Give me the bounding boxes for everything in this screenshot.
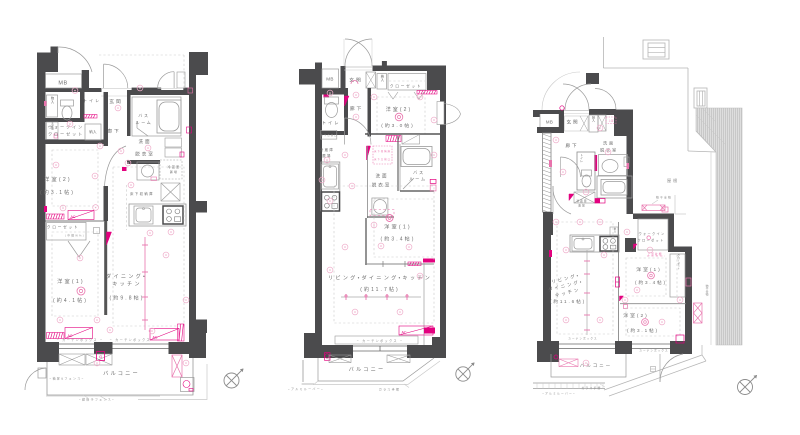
svg-text:AC: AC — [71, 215, 76, 219]
svg-text:(約3.4帖): (約3.4帖) — [381, 236, 416, 243]
svg-text:カーテンボックス: カーテンボックス — [639, 349, 668, 353]
svg-text:~アルミルーバー~: ~アルミルーバー~ — [542, 392, 576, 396]
svg-text:納入: 納入 — [613, 227, 616, 233]
svg-text:~袖扉&フェンス~: ~袖扉&フェンス~ — [49, 376, 84, 381]
svg-text:冷蔵庫: 冷蔵庫 — [168, 164, 181, 169]
svg-text:バス: バス — [138, 113, 149, 118]
svg-text:(約4.1帖): (約4.1帖) — [53, 297, 88, 304]
svg-text:洗面: 洗面 — [603, 140, 615, 147]
svg-text:洗面: 洗面 — [376, 173, 389, 180]
svg-text:~アルミルーバー~: ~アルミルーバー~ — [288, 386, 324, 391]
svg-text:~ カーテンボックス ~: ~ カーテンボックス ~ — [110, 337, 157, 342]
svg-text:ウォークイン: ウォークイン — [48, 124, 84, 131]
svg-text:(約11.7帖): (約11.7帖) — [360, 286, 400, 293]
svg-text:床下収納庫: 床下収納庫 — [130, 191, 154, 196]
svg-text:MB: MB — [546, 120, 553, 125]
svg-text:トイレ: トイレ — [322, 121, 341, 126]
svg-text:納入: 納入 — [379, 74, 383, 82]
svg-text:物干金物: 物干金物 — [656, 196, 672, 200]
svg-text:トイレ: トイレ — [83, 98, 101, 103]
svg-text:洋室(1): 洋室(1) — [57, 277, 85, 285]
svg-text:床下点検口: 床下点検口 — [321, 133, 338, 137]
svg-text:バルコニー: バルコニー — [349, 366, 386, 373]
svg-text:~縦格子フェンス~: ~縦格子フェンス~ — [79, 397, 115, 402]
svg-text:~ カーテンボックス ~: ~ カーテンボックス ~ — [57, 337, 104, 342]
svg-text:AC: AC — [402, 331, 407, 335]
svg-text:ガラス手摺: ガラス手摺 — [379, 387, 400, 392]
svg-text:物入: 物入 — [50, 96, 54, 104]
svg-text:脱衣室: 脱衣室 — [372, 182, 391, 189]
svg-text:洗面: 洗面 — [139, 138, 152, 145]
svg-text:廊下: 廊下 — [350, 105, 364, 112]
svg-text:クローゼット: クローゼット — [638, 238, 665, 243]
svg-text:クローゼット: クローゼット — [390, 84, 422, 89]
svg-text:バス: バス — [413, 170, 425, 175]
svg-text:(約3.1帖): (約3.1帖) — [40, 189, 75, 196]
svg-text:キッチン: キッチン — [112, 281, 142, 288]
svg-text:クローゼット: クローゼット — [47, 225, 79, 230]
svg-text:物干金物: 物干金物 — [705, 284, 709, 296]
svg-text:洋室(1): 洋室(1) — [636, 266, 661, 273]
svg-text:ウォークイン: ウォークイン — [639, 231, 666, 236]
svg-text:(約9.8帖): (約9.8帖) — [110, 295, 145, 302]
svg-text:納入: 納入 — [89, 129, 97, 134]
svg-text:廊下: 廊下 — [566, 142, 579, 149]
svg-text:(約3.1帖): (約3.1帖) — [627, 327, 659, 334]
svg-text:ガラス手摺: ガラス手摺 — [582, 386, 602, 390]
svg-text:ルーム: ルーム — [409, 177, 427, 182]
svg-text:床下点検口: 床下点検口 — [374, 157, 391, 161]
svg-text:脱衣室: 脱衣室 — [135, 151, 154, 158]
svg-text:洋室(2): 洋室(2) — [623, 312, 648, 319]
svg-text:MB: MB — [326, 77, 334, 82]
svg-text:上部: 上部 — [609, 119, 614, 123]
svg-text:クローゼット: クローゼット — [48, 131, 84, 138]
svg-text:バルコニー: バルコニー — [103, 370, 140, 377]
svg-text:(約3.0帖): (約3.0帖) — [381, 122, 414, 129]
svg-text:冷蔵庫: 冷蔵庫 — [320, 147, 334, 152]
svg-text:玄関: 玄関 — [109, 98, 123, 105]
svg-text:(約11.6帖): (約11.6帖) — [550, 298, 586, 305]
svg-text:廊下: 廊下 — [107, 128, 121, 135]
svg-text:~ カーテンボックス ~: ~ カーテンボックス ~ — [357, 338, 404, 343]
svg-text:ダイニング・: ダイニング・ — [106, 272, 147, 280]
svg-text:(中棚W%): (中棚W%) — [65, 234, 85, 238]
svg-text:カーテンボックス: カーテンボックス — [568, 337, 597, 341]
svg-text:屋根: 屋根 — [667, 177, 679, 184]
svg-text:MB: MB — [58, 81, 67, 87]
svg-text:トイレ: トイレ — [580, 153, 584, 162]
svg-text:脱衣室: 脱衣室 — [600, 147, 618, 154]
svg-text:床下収納庫: 床下収納庫 — [374, 149, 391, 153]
svg-text:(約3.4帖): (約3.4帖) — [635, 279, 667, 286]
svg-text:G: G — [99, 354, 102, 359]
svg-text:冷蔵庫: 冷蔵庫 — [576, 199, 587, 203]
svg-text:ルーム: ルーム — [136, 120, 153, 125]
svg-text:置場: 置場 — [578, 204, 586, 208]
svg-text:玄関: 玄関 — [567, 119, 580, 126]
svg-text:洋室(1): 洋室(1) — [384, 223, 412, 231]
svg-text:置場: 置場 — [170, 169, 179, 174]
svg-text:洋室(2): 洋室(2) — [44, 175, 72, 183]
svg-text:クローゼット: クローゼット — [677, 253, 680, 270]
svg-text:納入: 納入 — [592, 115, 596, 123]
svg-text:リビング・ダイニング・キッチン: リビング・ダイニング・キッチン — [328, 274, 432, 282]
svg-text:洋室(2): 洋室(2) — [386, 106, 413, 113]
